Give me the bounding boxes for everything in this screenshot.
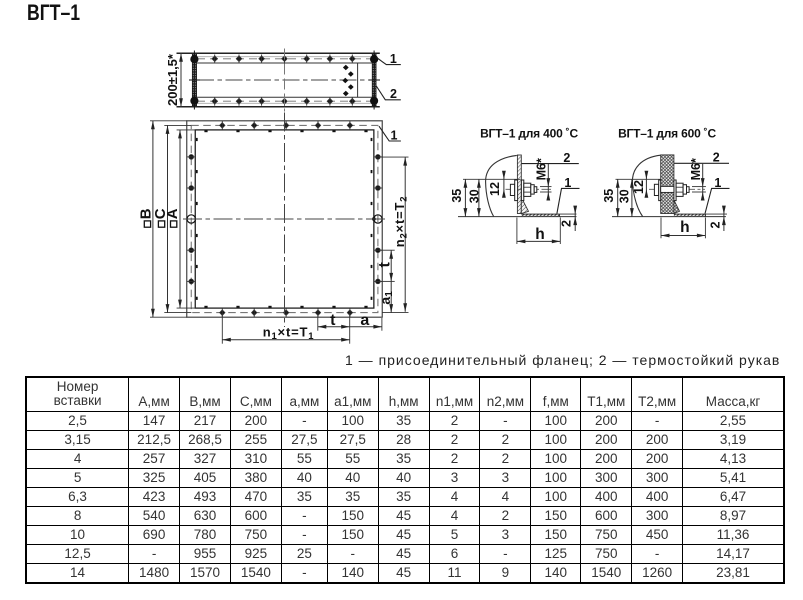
svg-text:M6*: M6* bbox=[689, 158, 703, 180]
svg-text:200±1,5*: 200±1,5* bbox=[165, 53, 180, 106]
svg-text:35: 35 bbox=[450, 189, 464, 203]
svg-text:1: 1 bbox=[391, 128, 398, 142]
svg-text:n1×t=T1: n1×t=T1 bbox=[263, 324, 315, 342]
svg-text:t: t bbox=[330, 312, 336, 329]
svg-text:A: A bbox=[164, 208, 181, 219]
svg-text:ВГТ–1 для 600 ˚С: ВГТ–1 для 600 ˚С bbox=[618, 127, 716, 141]
svg-text:30: 30 bbox=[467, 189, 481, 203]
svg-text:2: 2 bbox=[390, 87, 397, 101]
svg-text:n2×t=T2: n2×t=T2 bbox=[392, 196, 410, 248]
svg-text:t: t bbox=[377, 262, 394, 268]
svg-text:12: 12 bbox=[488, 182, 502, 196]
svg-text:35: 35 bbox=[602, 189, 616, 203]
svg-text:h: h bbox=[680, 219, 689, 236]
svg-text:2: 2 bbox=[713, 151, 720, 165]
svg-text:M6*: M6* bbox=[535, 158, 549, 180]
svg-text:2: 2 bbox=[560, 220, 574, 227]
svg-text:1: 1 bbox=[564, 176, 571, 190]
svg-text:2: 2 bbox=[563, 151, 570, 165]
svg-text:2: 2 bbox=[709, 221, 723, 228]
svg-text:ВГТ–1 для 400 ˚С: ВГТ–1 для 400 ˚С bbox=[480, 127, 578, 141]
svg-text:1: 1 bbox=[714, 176, 721, 190]
svg-text:12: 12 bbox=[632, 180, 646, 194]
svg-text:a1: a1 bbox=[377, 291, 395, 305]
svg-text:a: a bbox=[360, 312, 369, 329]
svg-text:1: 1 bbox=[390, 52, 397, 66]
svg-text:30: 30 bbox=[618, 189, 632, 203]
svg-text:h: h bbox=[535, 226, 544, 243]
